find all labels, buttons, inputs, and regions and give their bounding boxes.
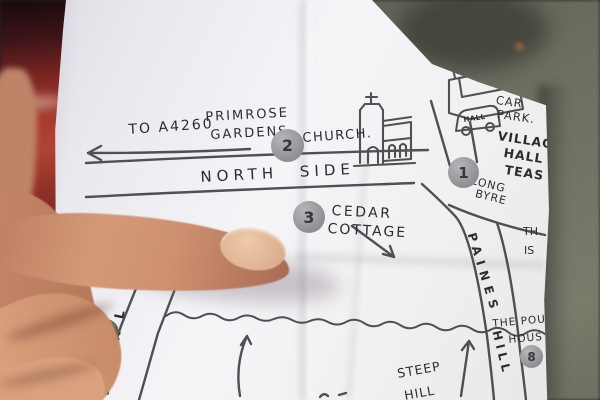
map-marker-2: 2 xyxy=(271,129,304,162)
arrow-up-footpath xyxy=(238,336,251,396)
stream-wavy-line xyxy=(166,312,545,336)
marker-number: 3 xyxy=(303,208,314,227)
map-marker-3: 3 xyxy=(293,201,325,233)
pavement-speck xyxy=(515,42,524,51)
photo-of-hand-drawn-map: TO A4260 PRIMROSE GARDENS CHURCH. NORTH … xyxy=(0,0,600,400)
marker-number: 2 xyxy=(282,136,293,155)
label-cut-note-2: IS xyxy=(524,244,534,257)
arrow-up-steep xyxy=(461,341,474,396)
label-cedar-cottage-1: CEDAR xyxy=(331,203,393,222)
road-carpark-west xyxy=(431,101,450,166)
marker-number: 1 xyxy=(458,164,468,182)
cut-off-text-fragment xyxy=(320,393,346,397)
map-marker-8: 8 xyxy=(520,345,543,368)
marker-number: 8 xyxy=(527,350,535,364)
road-north-side-bottom xyxy=(86,183,414,197)
map-marker-1: 1 xyxy=(448,157,479,188)
label-cut-note-1: TH xyxy=(523,225,538,238)
